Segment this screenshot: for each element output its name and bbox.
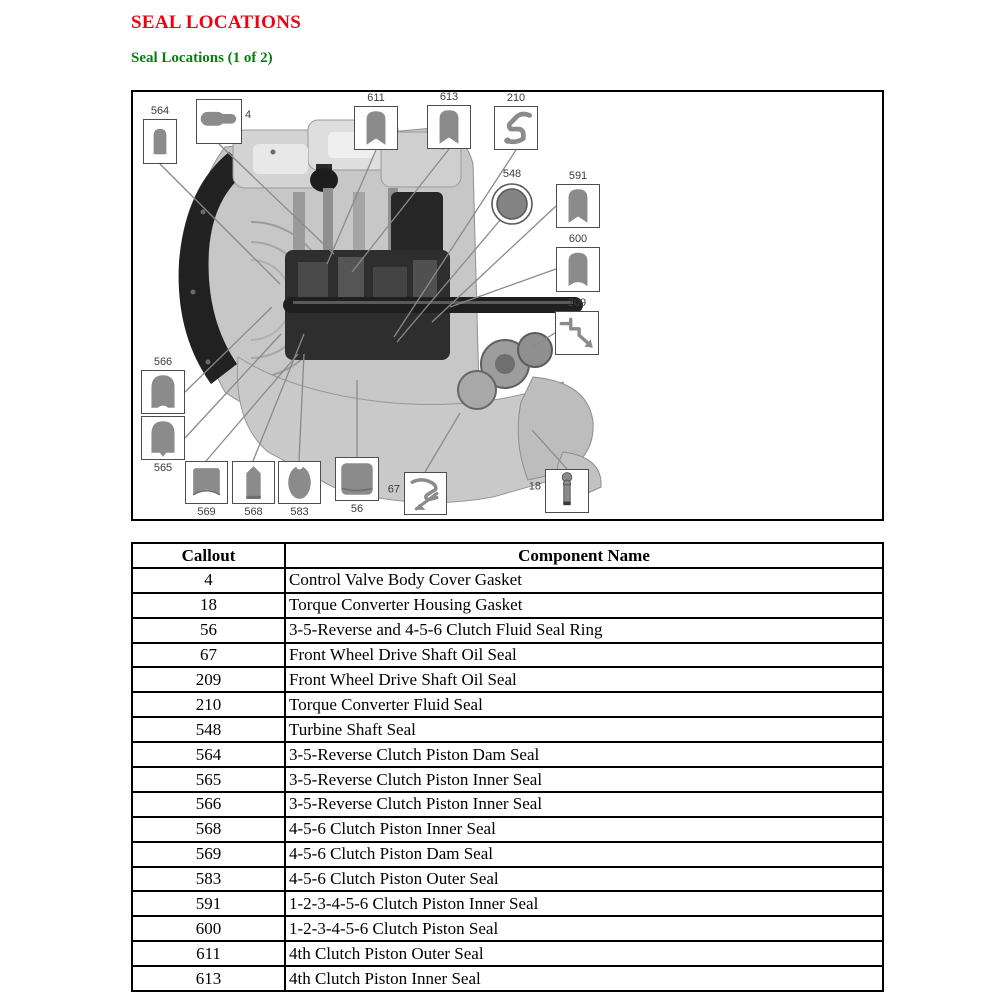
table-row: 209Front Wheel Drive Shaft Oil Seal	[132, 667, 883, 692]
component-name-cell: 4th Clutch Piston Inner Seal	[285, 966, 883, 991]
table-row: 6114th Clutch Piston Outer Seal	[132, 941, 883, 966]
callout-cell: 209	[132, 667, 285, 692]
callout-cell: 583	[132, 867, 285, 892]
callout-cell: 548	[132, 717, 285, 742]
callout-label: 583	[290, 507, 308, 518]
callout-cell: 18	[132, 593, 285, 618]
callout-cell: 210	[132, 692, 285, 717]
callout-label: 611	[367, 93, 385, 104]
dome-seal-icon	[142, 371, 184, 413]
callout-cell: 591	[132, 891, 285, 916]
component-name-cell: 4th Clutch Piston Outer Seal	[285, 941, 883, 966]
callout-210: 210	[494, 106, 538, 150]
callout-label: 568	[244, 507, 262, 518]
component-name-cell: 1-2-3-4-5-6 Clutch Piston Inner Seal	[285, 891, 883, 916]
callout-548: 548	[490, 182, 534, 226]
callout-label: 210	[507, 93, 525, 104]
callout-cell: 611	[132, 941, 285, 966]
component-name-cell: Torque Converter Housing Gasket	[285, 593, 883, 618]
callout-label: 548	[503, 169, 521, 180]
transmission-illustration	[133, 92, 882, 519]
table-row: 5653-5-Reverse Clutch Piston Inner Seal	[132, 767, 883, 792]
component-name-cell: 3-5-Reverse Clutch Piston Inner Seal	[285, 767, 883, 792]
callout-568: 568	[232, 461, 275, 504]
table-row: 5911-2-3-4-5-6 Clutch Piston Inner Seal	[132, 891, 883, 916]
ring-seal-icon	[490, 182, 534, 226]
pointed-seal-icon	[233, 462, 274, 503]
bullet-notch-seal-icon	[557, 185, 599, 227]
component-name-cell: Front Wheel Drive Shaft Oil Seal	[285, 643, 883, 668]
callout-611: 611	[354, 106, 398, 150]
table-row: 4Control Valve Body Cover Gasket	[132, 568, 883, 593]
callout-label: 564	[151, 106, 169, 117]
callout-cell: 613	[132, 966, 285, 991]
table-row: 5643-5-Reverse Clutch Piston Dam Seal	[132, 742, 883, 767]
component-name-cell: 4-5-6 Clutch Piston Outer Seal	[285, 867, 883, 892]
callout-565: 565	[141, 416, 185, 460]
bullet-curve-notch-seal-icon	[557, 248, 599, 291]
callout-583: 583	[278, 461, 321, 504]
callout-cell: 564	[132, 742, 285, 767]
callout-label: 600	[569, 234, 587, 245]
callout-209: 209	[555, 311, 599, 355]
table-row: 548Turbine Shaft Seal	[132, 717, 883, 742]
s-profile-seal-icon	[495, 107, 537, 149]
table-row: 6134th Clutch Piston Inner Seal	[132, 966, 883, 991]
table-row: 5834-5-6 Clutch Piston Outer Seal	[132, 867, 883, 892]
component-name-cell: 4-5-6 Clutch Piston Dam Seal	[285, 842, 883, 867]
oval-seal-icon	[279, 462, 320, 503]
component-name-cell: Turbine Shaft Seal	[285, 717, 883, 742]
callout-591: 591	[556, 184, 600, 228]
square-seal-ring-icon	[336, 458, 378, 500]
document-page: SEAL LOCATIONS Seal Locations (1 of 2)	[0, 0, 1004, 1004]
dam-seal-icon	[186, 462, 227, 503]
callout-566: 566	[141, 370, 185, 414]
callout-label: 56	[351, 504, 363, 515]
table-row: 210Torque Converter Fluid Seal	[132, 692, 883, 717]
callout-cell: 67	[132, 643, 285, 668]
callout-600: 600	[556, 247, 600, 292]
component-name-cell: 4-5-6 Clutch Piston Inner Seal	[285, 817, 883, 842]
callout-label: 67	[388, 485, 400, 496]
callout-564: 564	[143, 119, 177, 164]
component-name-cell: 1-2-3-4-5-6 Clutch Piston Seal	[285, 916, 883, 941]
callout-label: 591	[569, 171, 587, 182]
table-row: 18Torque Converter Housing Gasket	[132, 593, 883, 618]
component-name-cell: Front Wheel Drive Shaft Oil Seal	[285, 667, 883, 692]
component-name-cell: 3-5-Reverse Clutch Piston Inner Seal	[285, 792, 883, 817]
bullet-seal-icon	[144, 120, 176, 163]
page-title: SEAL LOCATIONS	[131, 12, 301, 34]
table-row: 5684-5-6 Clutch Piston Inner Seal	[132, 817, 883, 842]
section-subtitle: Seal Locations (1 of 2)	[131, 50, 273, 67]
callout-18: 18	[545, 469, 589, 513]
table-row: 5694-5-6 Clutch Piston Dam Seal	[132, 842, 883, 867]
horizontal-gasket-icon	[197, 100, 241, 143]
table-row: 6001-2-3-4-5-6 Clutch Piston Seal	[132, 916, 883, 941]
table-row: 67Front Wheel Drive Shaft Oil Seal	[132, 643, 883, 668]
callout-cell: 566	[132, 792, 285, 817]
bullet-notch-seal-icon	[428, 106, 470, 148]
bullet-notch-seal-icon	[355, 107, 397, 149]
callout-56: 56	[335, 457, 379, 501]
component-name-cell: Torque Converter Fluid Seal	[285, 692, 883, 717]
callout-label: 4	[245, 110, 251, 121]
zigzag-profile-seal-icon	[556, 312, 598, 354]
dome-point-seal-icon	[142, 417, 184, 459]
callout-label: 18	[529, 482, 541, 493]
callout-569: 569	[185, 461, 228, 504]
callout-cell: 4	[132, 568, 285, 593]
lip-profile-seal-icon	[405, 473, 446, 514]
seal-table: Callout Component Name 4Control Valve Bo…	[131, 542, 884, 992]
callout-cell: 600	[132, 916, 285, 941]
table-row: 5663-5-Reverse Clutch Piston Inner Seal	[132, 792, 883, 817]
callout-cell: 56	[132, 618, 285, 643]
component-name-cell: 3-5-Reverse and 4-5-6 Clutch Fluid Seal …	[285, 618, 883, 643]
callout-67: 67	[404, 472, 447, 515]
header-callout: Callout	[132, 543, 285, 568]
callout-cell: 569	[132, 842, 285, 867]
seal-location-diagram: 564 4 611	[131, 90, 884, 521]
callout-613: 613	[427, 105, 471, 149]
callout-cell: 568	[132, 817, 285, 842]
callout-label: 565	[154, 463, 172, 474]
callout-4: 4	[196, 99, 242, 144]
callout-label: 209	[568, 298, 586, 309]
component-name-cell: Control Valve Body Cover Gasket	[285, 568, 883, 593]
stud-gasket-icon	[546, 470, 588, 512]
table-row: 563-5-Reverse and 4-5-6 Clutch Fluid Sea…	[132, 618, 883, 643]
callout-label: 613	[440, 92, 458, 103]
callout-cell: 565	[132, 767, 285, 792]
component-name-cell: 3-5-Reverse Clutch Piston Dam Seal	[285, 742, 883, 767]
header-component-name: Component Name	[285, 543, 883, 568]
callout-label: 566	[154, 357, 172, 368]
table-header-row: Callout Component Name	[132, 543, 883, 568]
callout-label: 569	[197, 507, 215, 518]
